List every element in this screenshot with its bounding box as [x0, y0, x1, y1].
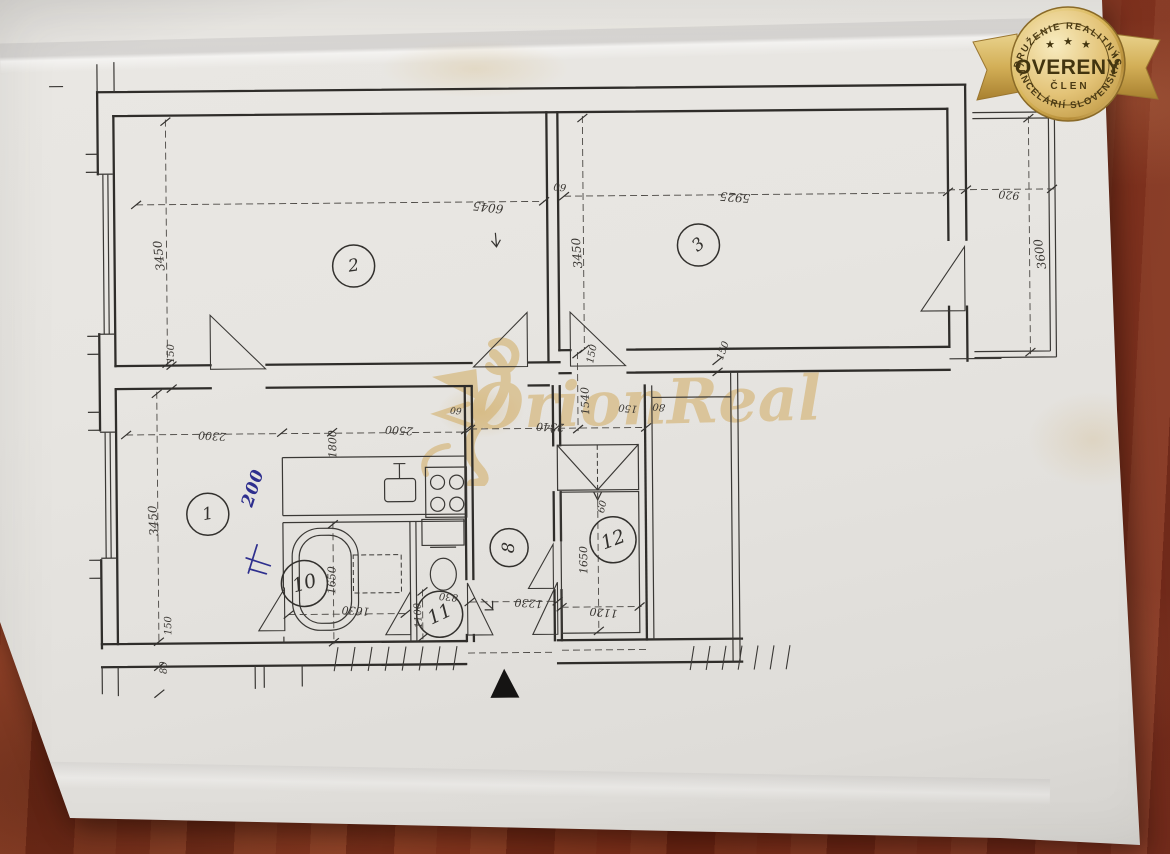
room-labels: 1238101112 — [184, 224, 723, 640]
dimension-label: 1120 — [589, 605, 618, 620]
exterior-hatching — [334, 643, 790, 673]
room-number: 8 — [499, 541, 520, 554]
entrance-triangle — [490, 669, 519, 698]
pen-arrow-room1 — [482, 599, 494, 610]
dimension-label: 920 — [998, 187, 1020, 202]
dimension-label: 150 — [166, 343, 177, 363]
room-number: 12 — [598, 525, 628, 554]
dimension-lines — [123, 112, 1058, 656]
dimension-label: 2500 — [385, 423, 415, 438]
dimension-label: 3600 — [1031, 238, 1049, 271]
wc-cistern — [422, 519, 464, 545]
badge-center-text: OVERENÝ — [1015, 55, 1121, 79]
dimension-label: 3450 — [145, 505, 161, 537]
dimension-label: 1800 — [326, 430, 339, 458]
star-icon: ★ — [1045, 38, 1055, 51]
door-swings — [210, 312, 628, 638]
dimension-label: 1650 — [577, 546, 590, 574]
star-icon: ★ — [1063, 35, 1073, 48]
dimension-label: 1630 — [341, 603, 370, 618]
room-number: 1 — [201, 503, 215, 525]
room-number: 3 — [688, 234, 709, 256]
dimension-label: 80 — [159, 661, 170, 674]
dimension-label: 80 — [651, 400, 665, 412]
dimension-label: 1650 — [325, 566, 338, 594]
dimension-label: 3450 — [150, 239, 167, 271]
kitchen-fixtures — [384, 463, 466, 518]
dimension-label: 150 — [163, 615, 174, 635]
dimension-label: 3450 — [569, 237, 585, 269]
balcony-door-swing — [921, 247, 966, 311]
dimension-label: 2340 — [536, 420, 566, 434]
toilet — [430, 558, 456, 590]
pen-arrow-room2 — [491, 233, 500, 247]
dimension-label: 1230 — [514, 596, 543, 611]
photo-of-floorplan: OrionReal — [0, 0, 1170, 854]
dimension-label: 60 — [552, 180, 567, 193]
balcony — [919, 112, 1056, 358]
dimension-label: 830 — [438, 590, 459, 603]
verified-member-badge: ZDRUŽENIE REALITNÝCH ★ ★ ★ OVERENÝ ČLEN … — [953, 0, 1165, 144]
dimension-label: 60 — [596, 499, 610, 515]
partitions — [282, 445, 640, 643]
dimension-label: 1540 — [578, 387, 592, 415]
dimension-label: 1100 — [412, 602, 425, 629]
dimension-label: 150 — [617, 401, 638, 414]
room-number: 11 — [424, 599, 455, 629]
badge-seal: ZDRUŽENIE REALITNÝCH ★ ★ ★ OVERENÝ ČLEN … — [953, 0, 1125, 121]
dimension-label: 150 — [715, 339, 732, 361]
badge-member-text: ČLEN — [1050, 79, 1089, 92]
dimension-labels: 6045345015060592534501509203600150154015… — [143, 176, 1053, 675]
kitchen-sink — [385, 478, 416, 501]
handwritten-mark — [246, 545, 270, 574]
star-icon: ★ — [1081, 38, 1091, 51]
dimension-label: 60 — [450, 404, 463, 415]
room-number: 2 — [346, 255, 361, 277]
dimension-label: 6045 — [472, 199, 504, 216]
dimension-label: 2300 — [198, 428, 228, 443]
room-number: 10 — [290, 570, 319, 598]
dimension-label: 5925 — [719, 189, 751, 205]
